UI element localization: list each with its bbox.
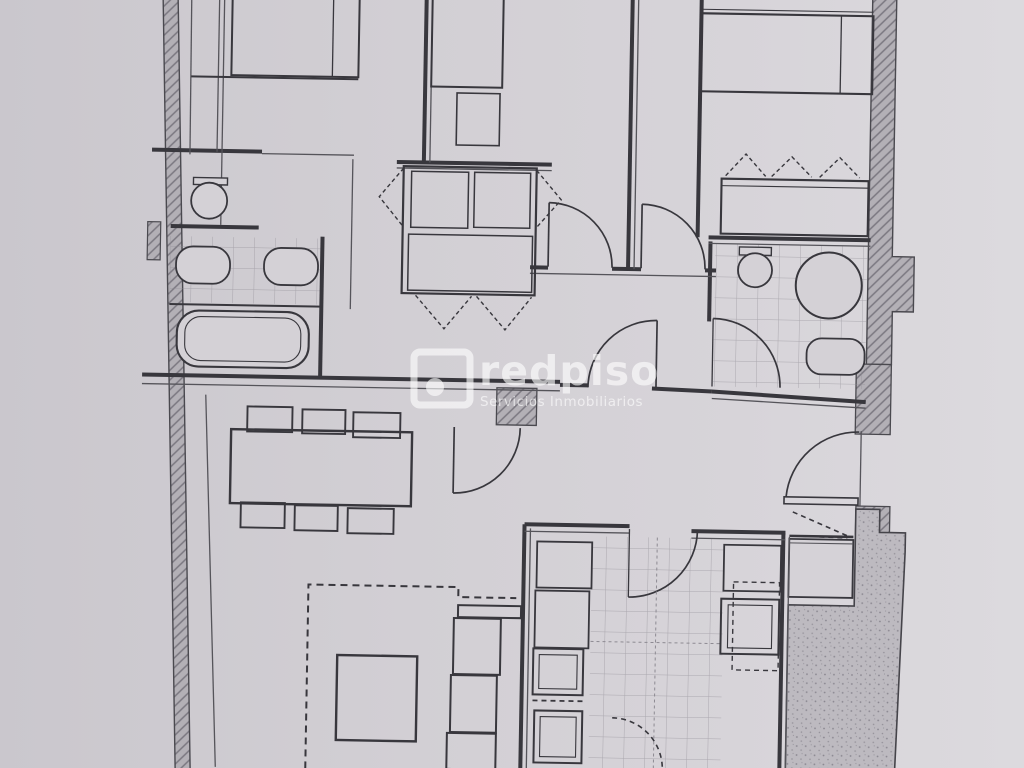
kitchen-tiles [588,536,724,768]
floor-plan-canvas: redpiso Servicios Inmobiliarios [0,0,1024,768]
bidet-right [806,338,865,375]
watermark-tagline: Servicios Inmobiliarios [480,394,643,410]
terrace-window [788,536,853,598]
floor-plan-photo: redpiso Servicios Inmobiliarios [0,0,1024,768]
toilet-right [738,253,773,288]
bidet-left [176,246,231,284]
toilet-left [191,182,228,219]
shower [795,252,862,319]
watermark-logo-dot [426,378,444,396]
watermark-brand: redpiso [479,347,659,395]
washbasin-left [264,248,319,286]
terrace [785,508,906,768]
